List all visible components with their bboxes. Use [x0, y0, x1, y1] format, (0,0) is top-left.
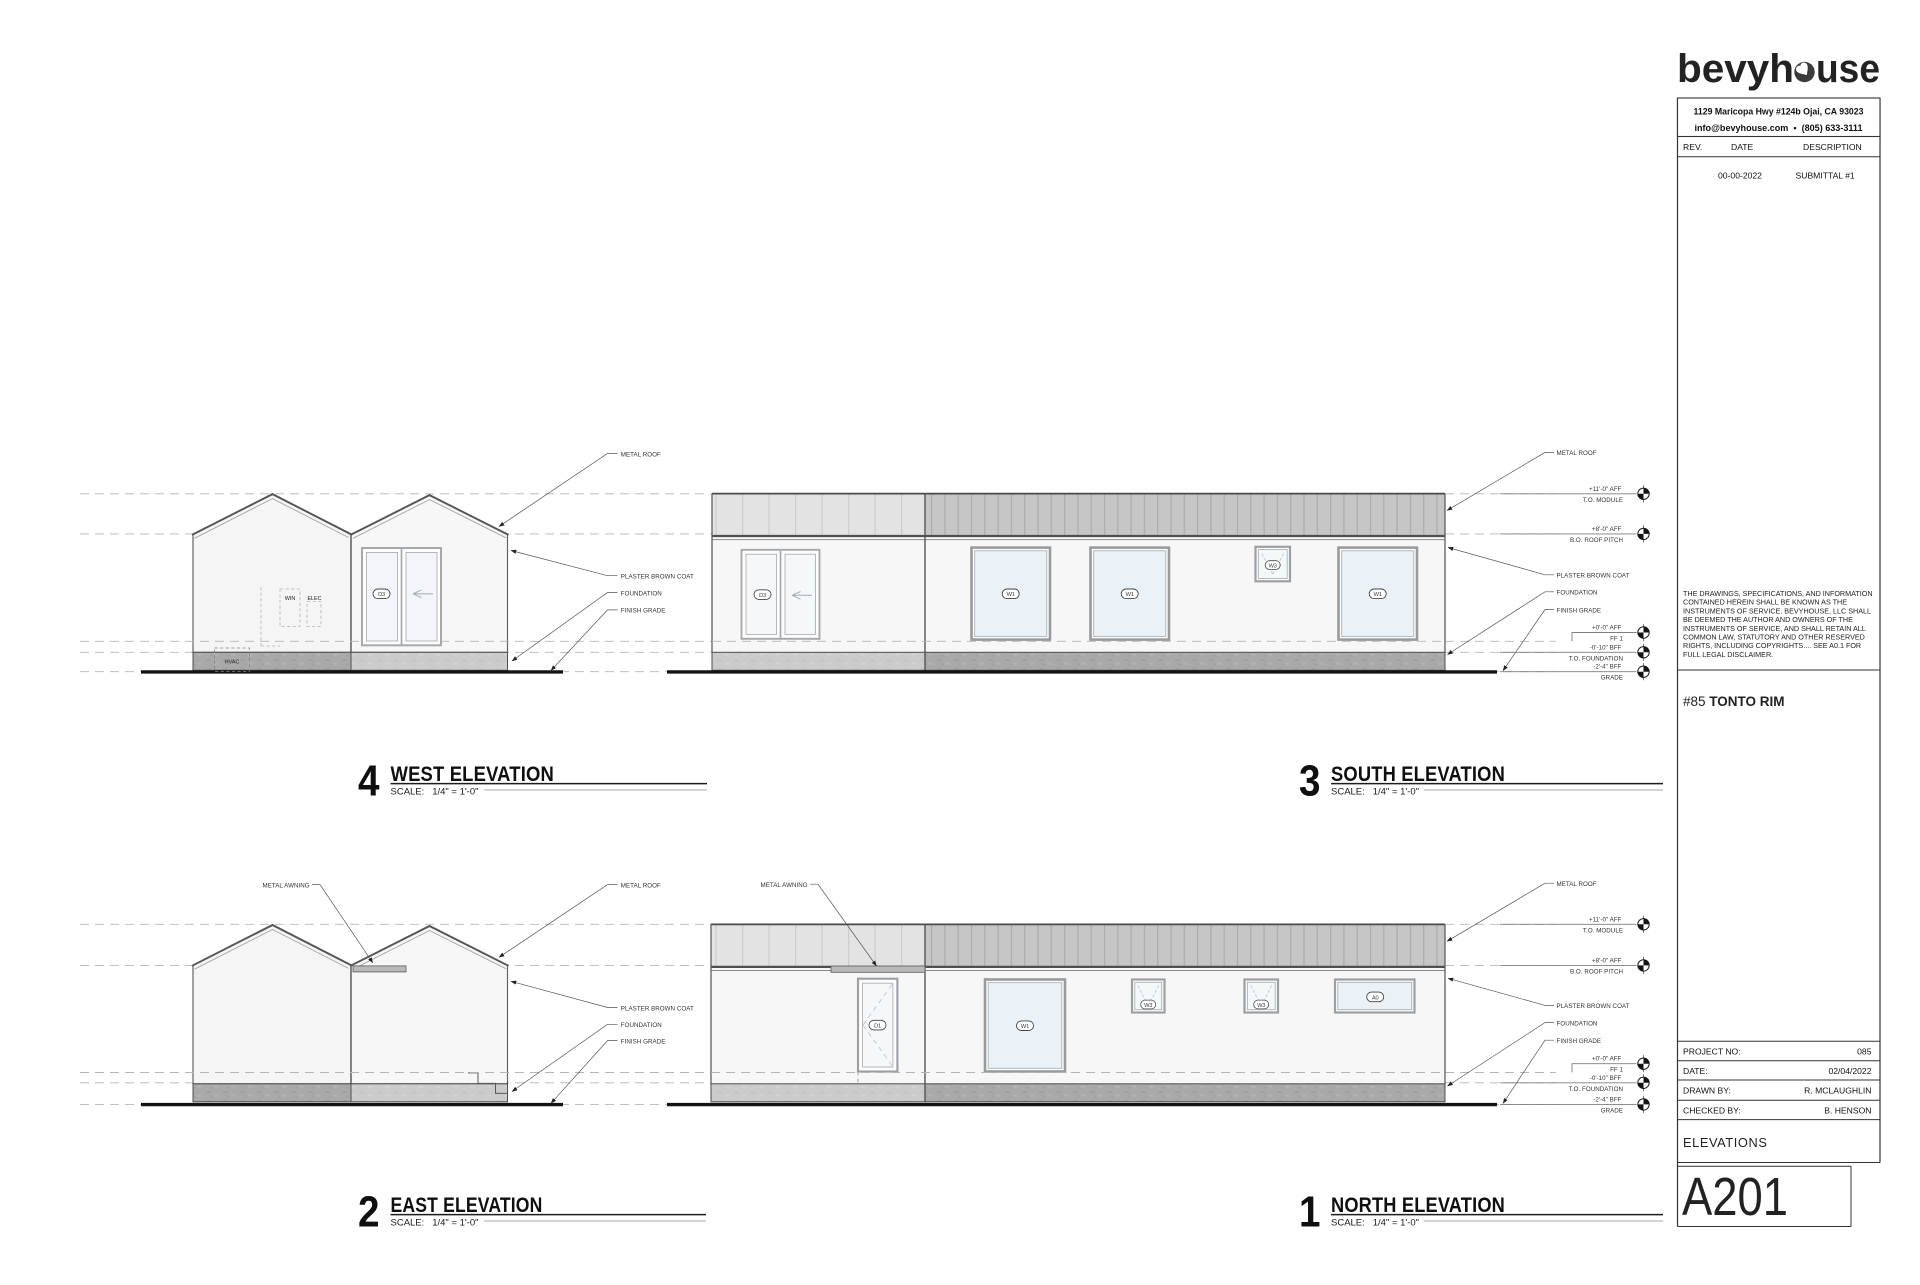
svg-text:DRAWN BY:: DRAWN BY:: [1683, 1086, 1731, 1096]
svg-text:BE DEEMED THE AUTHOR AND OWNER: BE DEEMED THE AUTHOR AND OWNERS OF THE: [1683, 615, 1853, 624]
svg-text:+11'-0" AFF: +11'-0" AFF: [1589, 486, 1622, 493]
svg-text:NORTH ELEVATION: NORTH ELEVATION: [1331, 1194, 1505, 1217]
svg-text:THE DRAWINGS, SPECIFICATIONS,: THE DRAWINGS, SPECIFICATIONS, AND INFORM…: [1683, 589, 1873, 598]
svg-text:1: 1: [1299, 1188, 1321, 1237]
svg-text:DATE: DATE: [1731, 142, 1754, 152]
svg-text:use: use: [1816, 47, 1880, 91]
svg-text:T.O. FOUNDATION: T.O. FOUNDATION: [1569, 1086, 1623, 1093]
svg-text:PROJECT NO:: PROJECT NO:: [1683, 1047, 1741, 1057]
svg-text:A201: A201: [1682, 1167, 1788, 1227]
svg-text:1129 Maricopa Hwy #124b Ojai,: 1129 Maricopa Hwy #124b Ojai, CA 93023: [1694, 107, 1864, 117]
svg-text:info@bevyhouse.com • (805) 6: info@bevyhouse.com • (805) 633-3111: [1695, 123, 1863, 133]
svg-text:bevyh: bevyh: [1677, 47, 1794, 91]
svg-text:-0'-10" BFF: -0'-10" BFF: [1590, 644, 1622, 651]
svg-text:INSTRUMENTS OF SERVICE, AND SH: INSTRUMENTS OF SERVICE, AND SHALL RETAIN…: [1683, 624, 1866, 633]
svg-text:00-00-2022: 00-00-2022: [1718, 171, 1762, 181]
svg-text:+8'-0" AFF: +8'-0" AFF: [1592, 957, 1622, 964]
svg-text:T.O. FOUNDATION: T.O. FOUNDATION: [1569, 655, 1623, 662]
svg-text:PLASTER BROWN COAT: PLASTER BROWN COAT: [1557, 573, 1630, 580]
svg-text:3: 3: [1299, 757, 1321, 806]
svg-text:FINISH GRADE: FINISH GRADE: [621, 1038, 666, 1045]
svg-text:W1: W1: [1374, 592, 1382, 598]
svg-text:-0'-10" BFF: -0'-10" BFF: [1590, 1075, 1622, 1082]
svg-text:DATE:: DATE:: [1683, 1066, 1708, 1076]
svg-text:W3: W3: [1144, 1003, 1152, 1009]
svg-text:R. MCLAUGHLIN: R. MCLAUGHLIN: [1804, 1086, 1871, 1096]
svg-text:+11'-0" AFF: +11'-0" AFF: [1589, 916, 1622, 923]
svg-text:D1: D1: [874, 1024, 881, 1030]
svg-text:+8'-0" AFF: +8'-0" AFF: [1592, 526, 1622, 533]
svg-text:GRADE: GRADE: [1601, 1107, 1623, 1114]
svg-text:SOUTH ELEVATION: SOUTH ELEVATION: [1331, 763, 1505, 786]
svg-text:FF 1: FF 1: [1610, 1067, 1623, 1074]
svg-text:-2'-4" BFF: -2'-4" BFF: [1593, 664, 1621, 671]
svg-text:D3: D3: [759, 593, 766, 599]
svg-text:WIN: WIN: [285, 596, 296, 602]
svg-text:METAL ROOF: METAL ROOF: [1557, 881, 1597, 888]
svg-text:ELEVATIONS: ELEVATIONS: [1683, 1135, 1767, 1150]
svg-text:2: 2: [358, 1188, 380, 1237]
svg-text:HVAC: HVAC: [225, 660, 240, 666]
svg-text:SCALE: 1/4" = 1'-0": SCALE: 1/4" = 1'-0": [1331, 785, 1419, 796]
svg-text:A0: A0: [1372, 995, 1379, 1001]
svg-text:FOUNDATION: FOUNDATION: [1557, 1020, 1598, 1027]
svg-text:T.O. MODULE: T.O. MODULE: [1583, 497, 1623, 504]
svg-text:4: 4: [358, 757, 380, 806]
svg-text:METAL ROOF: METAL ROOF: [621, 451, 661, 458]
svg-text:GRADE: GRADE: [1601, 675, 1623, 682]
svg-text:+0'-0" AFF: +0'-0" AFF: [1592, 1056, 1622, 1063]
svg-text:FINISH GRADE: FINISH GRADE: [1557, 1038, 1602, 1045]
svg-text:FULL LEGAL DISCLAIMER.: FULL LEGAL DISCLAIMER.: [1683, 650, 1773, 659]
svg-text:CHECKED BY:: CHECKED BY:: [1683, 1106, 1741, 1116]
svg-text:-2'-4" BFF: -2'-4" BFF: [1593, 1096, 1621, 1103]
svg-text:INSTRUMENTS OF SERVICE. BEVYHO: INSTRUMENTS OF SERVICE. BEVYHOUSE, LLC S…: [1683, 606, 1871, 615]
svg-text:FOUNDATION: FOUNDATION: [621, 590, 662, 597]
svg-text:FF 1: FF 1: [1610, 636, 1623, 643]
svg-text:RIGHTS, INCLUDING COPYRIGHTS..: RIGHTS, INCLUDING COPYRIGHTS.... SEE A0.…: [1683, 641, 1861, 650]
svg-text:FOUNDATION: FOUNDATION: [621, 1022, 662, 1029]
svg-text:W1: W1: [1126, 592, 1134, 598]
svg-text:REV.: REV.: [1683, 142, 1702, 152]
svg-text:SCALE: 1/4" = 1'-0": SCALE: 1/4" = 1'-0": [391, 1216, 479, 1227]
svg-text:ELEC: ELEC: [307, 596, 321, 602]
svg-text:D3: D3: [378, 592, 385, 598]
svg-text:B.O. ROOF PITCH: B.O. ROOF PITCH: [1570, 537, 1623, 544]
svg-text:METAL ROOF: METAL ROOF: [621, 882, 661, 889]
svg-text:PLASTER BROWN COAT: PLASTER BROWN COAT: [621, 1005, 694, 1012]
svg-text:DESCRIPTION: DESCRIPTION: [1803, 142, 1862, 152]
svg-text:WEST ELEVATION: WEST ELEVATION: [391, 763, 555, 786]
svg-text:METAL AWNING: METAL AWNING: [761, 882, 808, 889]
svg-text:EAST ELEVATION: EAST ELEVATION: [391, 1194, 543, 1217]
svg-text:W1: W1: [1007, 592, 1015, 598]
svg-text:T.O. MODULE: T.O. MODULE: [1583, 927, 1623, 934]
svg-text:FINISH GRADE: FINISH GRADE: [621, 608, 666, 615]
svg-text:PLASTER BROWN COAT: PLASTER BROWN COAT: [621, 574, 694, 581]
svg-text:SCALE: 1/4" = 1'-0": SCALE: 1/4" = 1'-0": [1331, 1216, 1419, 1227]
svg-text:CONTAINED HEREIN SHALL BE KNOW: CONTAINED HEREIN SHALL BE KNOWN AS THE: [1683, 598, 1847, 607]
svg-text:W3: W3: [1269, 563, 1277, 569]
svg-text:SUBMITTAL #1: SUBMITTAL #1: [1796, 171, 1855, 181]
svg-text:PLASTER BROWN COAT: PLASTER BROWN COAT: [1557, 1003, 1630, 1010]
svg-text:+0'-0" AFF: +0'-0" AFF: [1592, 625, 1622, 632]
svg-text:W1: W1: [1021, 1024, 1029, 1030]
svg-text:COMMON LAW, STATUTORY AND OTHE: COMMON LAW, STATUTORY AND OTHER RESERVED: [1683, 633, 1865, 642]
svg-text:085: 085: [1857, 1047, 1872, 1057]
svg-text:B.O. ROOF PITCH: B.O. ROOF PITCH: [1570, 968, 1623, 975]
svg-text:02/04/2022: 02/04/2022: [1828, 1066, 1871, 1076]
svg-text:FINISH GRADE: FINISH GRADE: [1557, 607, 1602, 614]
svg-text:B. HENSON: B. HENSON: [1824, 1106, 1871, 1116]
svg-text:#85 TONTO RIM: #85 TONTO RIM: [1683, 694, 1785, 709]
svg-text:SCALE: 1/4" = 1'-0": SCALE: 1/4" = 1'-0": [391, 785, 479, 796]
svg-text:METAL ROOF: METAL ROOF: [1557, 450, 1597, 457]
svg-text:FOUNDATION: FOUNDATION: [1557, 590, 1598, 597]
svg-text:METAL AWNING: METAL AWNING: [263, 882, 310, 889]
svg-text:W3: W3: [1257, 1003, 1265, 1009]
